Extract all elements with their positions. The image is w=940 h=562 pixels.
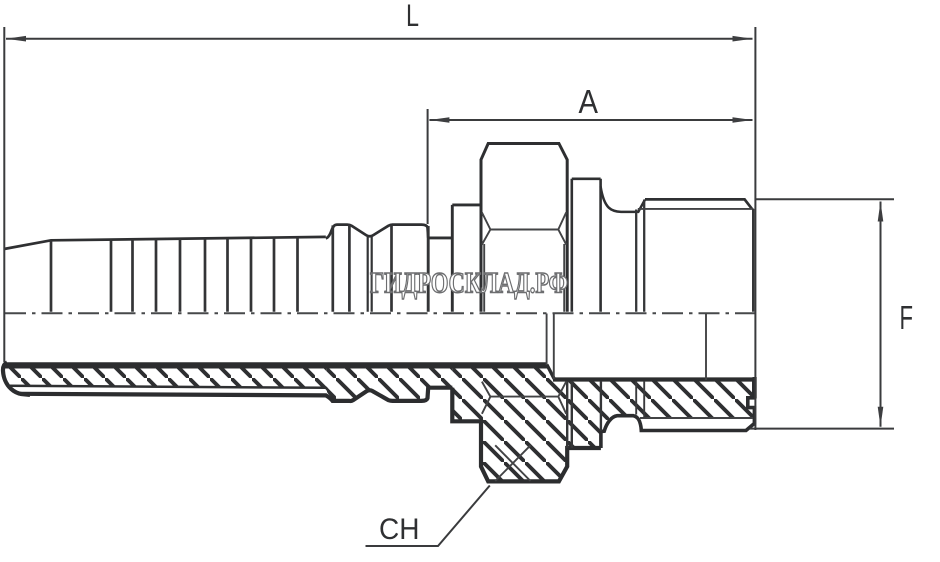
svg-text:L: L xyxy=(406,0,419,33)
svg-text:CH: CH xyxy=(379,513,420,546)
svg-text:ГИДРОСКЛАД.РФ: ГИДРОСКЛАД.РФ xyxy=(370,267,568,300)
svg-text:A: A xyxy=(579,83,599,120)
svg-text:F: F xyxy=(900,299,914,336)
